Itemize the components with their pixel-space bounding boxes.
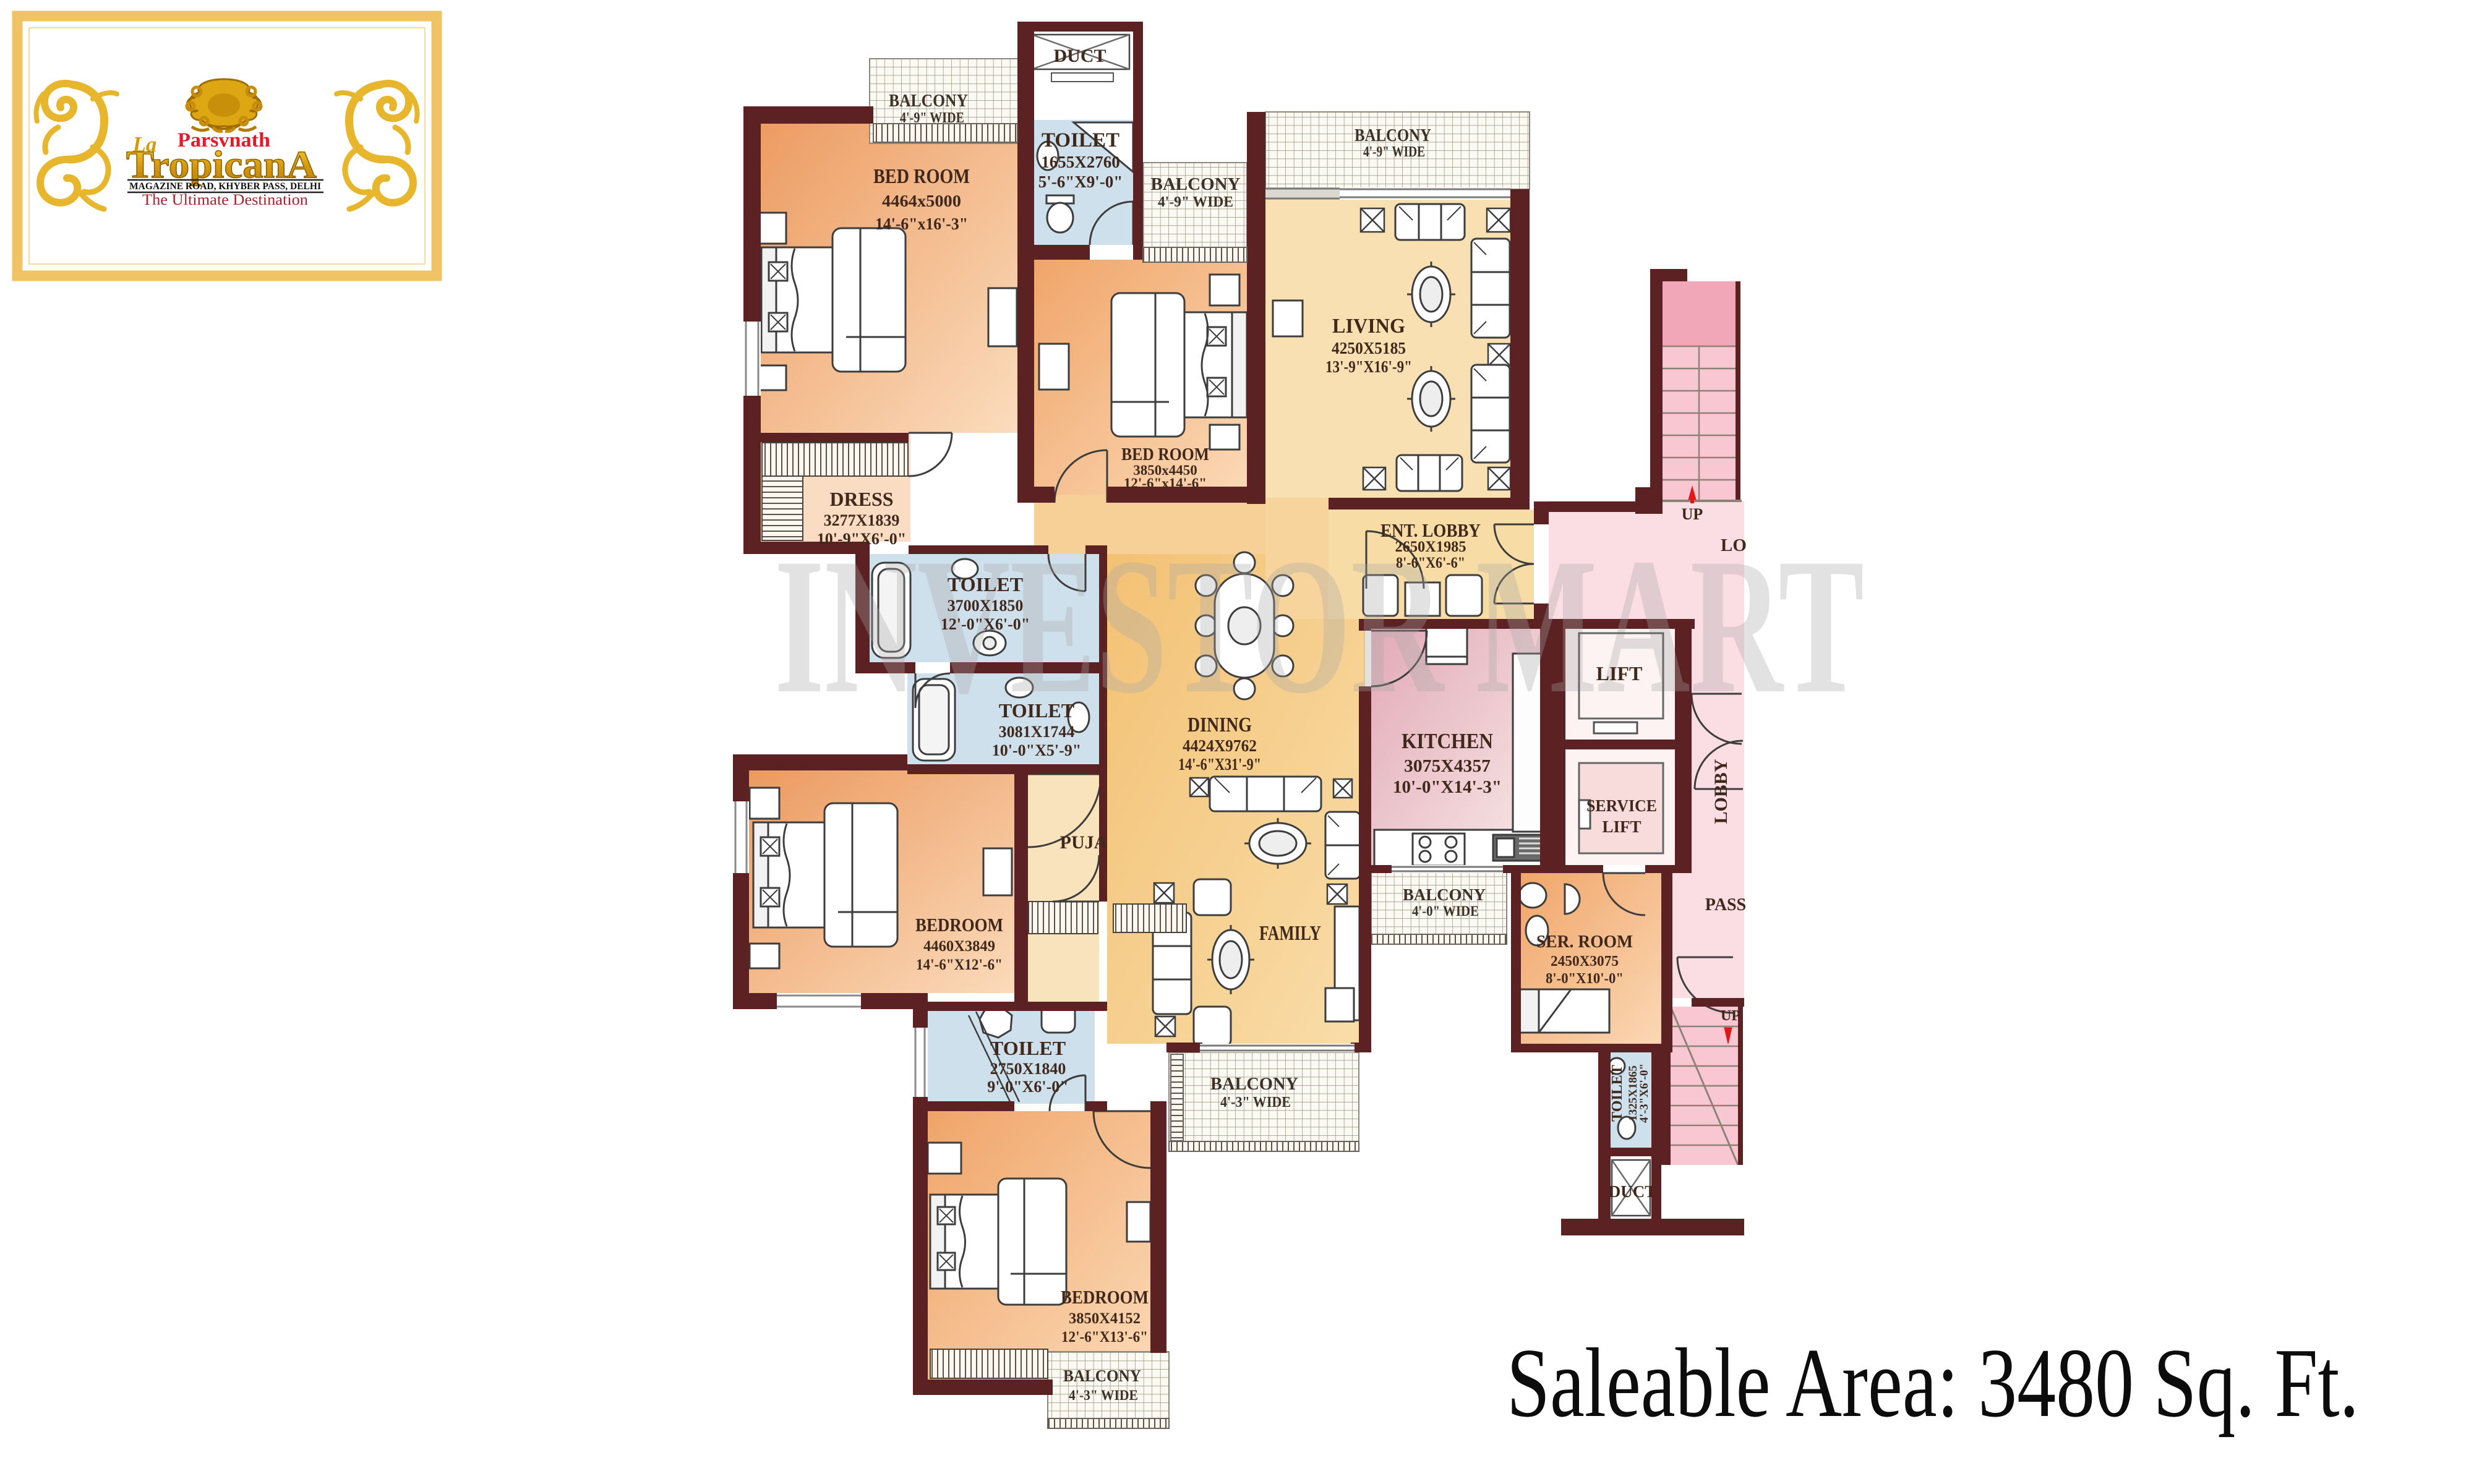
svg-text:14'-6"X12'-6": 14'-6"X12'-6" xyxy=(916,957,1003,973)
svg-text:DRESS: DRESS xyxy=(829,488,893,510)
svg-text:10'-0"X5'-9": 10'-0"X5'-9" xyxy=(992,741,1081,759)
svg-text:2650X1985: 2650X1985 xyxy=(1395,539,1466,555)
svg-text:9'-0"X6'-0": 9'-0"X6'-0" xyxy=(987,1078,1068,1096)
svg-text:BED ROOM: BED ROOM xyxy=(1121,445,1209,464)
svg-text:4'-9" WIDE: 4'-9" WIDE xyxy=(900,110,964,126)
svg-text:ENT. LOBBY: ENT. LOBBY xyxy=(1380,519,1481,541)
svg-text:4'-9" WIDE: 4'-9" WIDE xyxy=(1363,144,1425,160)
svg-text:2450X3075: 2450X3075 xyxy=(1551,953,1619,970)
svg-text:TOILET: TOILET xyxy=(1609,1065,1625,1122)
svg-text:TOILET: TOILET xyxy=(1042,129,1119,151)
svg-text:BALCONY: BALCONY xyxy=(1063,1367,1141,1385)
svg-text:4424X9762: 4424X9762 xyxy=(1183,736,1257,755)
svg-text:3277X1839: 3277X1839 xyxy=(824,511,900,529)
svg-text:BEDROOM: BEDROOM xyxy=(915,914,1003,936)
svg-text:FAMILY: FAMILY xyxy=(1259,922,1321,945)
svg-text:12'-0"X6'-0": 12'-0"X6'-0" xyxy=(941,615,1030,633)
svg-text:KITCHEN: KITCHEN xyxy=(1402,729,1493,753)
svg-text:UP: UP xyxy=(1682,505,1703,523)
svg-text:10'-0"X14'-3": 10'-0"X14'-3" xyxy=(1393,777,1502,797)
svg-text:MAGAZINE ROAD, KHYBER PASS, DE: MAGAZINE ROAD, KHYBER PASS, DELHI xyxy=(129,181,321,192)
svg-text:3081X1744: 3081X1744 xyxy=(999,723,1075,741)
svg-text:14'-6"X31'-9": 14'-6"X31'-9" xyxy=(1178,755,1261,774)
svg-text:SERVICE: SERVICE xyxy=(1586,796,1657,815)
svg-text:LO: LO xyxy=(1721,535,1747,555)
svg-text:BALCONY: BALCONY xyxy=(1403,885,1486,904)
svg-text:4464x5000: 4464x5000 xyxy=(882,192,961,210)
svg-text:4250X5185: 4250X5185 xyxy=(1332,339,1406,357)
svg-text:4'-9" WIDE: 4'-9" WIDE xyxy=(1158,194,1233,210)
svg-text:DUCT: DUCT xyxy=(1609,1182,1656,1201)
svg-text:UP: UP xyxy=(1721,1008,1740,1024)
svg-text:8'-6"X6'-6": 8'-6"X6'-6" xyxy=(1396,555,1465,571)
svg-text:BALCONY: BALCONY xyxy=(1151,174,1241,194)
svg-text:SER. ROOM: SER. ROOM xyxy=(1536,932,1633,952)
svg-text:1655X2760: 1655X2760 xyxy=(1041,153,1120,171)
svg-text:4460X3849: 4460X3849 xyxy=(923,938,995,955)
svg-text:4'-3" WIDE: 4'-3" WIDE xyxy=(1220,1094,1291,1111)
svg-text:4'-3" WIDE: 4'-3" WIDE xyxy=(1069,1388,1138,1403)
svg-text:12'-6"x14'-6": 12'-6"x14'-6" xyxy=(1124,475,1207,491)
svg-text:3700X1850: 3700X1850 xyxy=(948,597,1024,615)
svg-text:14'-6"x16'-3": 14'-6"x16'-3" xyxy=(875,215,968,233)
svg-text:4'-3"X6'-0": 4'-3"X6'-0" xyxy=(1638,1064,1651,1123)
svg-text:4'-0" WIDE: 4'-0" WIDE xyxy=(1412,903,1479,919)
svg-text:LIFT: LIFT xyxy=(1602,817,1641,836)
svg-text:BALCONY: BALCONY xyxy=(889,91,968,111)
svg-text:8'-0"X10'-0": 8'-0"X10'-0" xyxy=(1546,971,1624,987)
svg-text:TOILET: TOILET xyxy=(948,573,1023,595)
svg-text:BALCONY: BALCONY xyxy=(1355,126,1431,145)
svg-text:LIFT: LIFT xyxy=(1596,662,1643,684)
svg-text:LIVING: LIVING xyxy=(1332,315,1405,338)
svg-text:13'-9"X16'-9": 13'-9"X16'-9" xyxy=(1325,357,1412,376)
svg-text:DINING: DINING xyxy=(1188,714,1252,736)
svg-text:BEDROOM: BEDROOM xyxy=(1061,1286,1149,1308)
svg-text:12'-6"X13'-6": 12'-6"X13'-6" xyxy=(1061,1329,1148,1345)
svg-text:2750X1840: 2750X1840 xyxy=(990,1060,1066,1078)
svg-text:TOILET: TOILET xyxy=(999,699,1074,722)
svg-text:PASS: PASS xyxy=(1705,895,1746,915)
svg-text:BALCONY: BALCONY xyxy=(1210,1074,1298,1094)
svg-text:3850X4152: 3850X4152 xyxy=(1069,1310,1141,1327)
svg-text:Saleable Area: 3480 Sq. Ft.: Saleable Area: 3480 Sq. Ft. xyxy=(1507,1328,2359,1438)
svg-text:PUJA: PUJA xyxy=(1060,832,1108,853)
svg-text:The Ultimate Destination: The Ultimate Destination xyxy=(142,192,309,208)
svg-text:TOILET: TOILET xyxy=(990,1037,1066,1059)
svg-text:DUCT: DUCT xyxy=(1053,46,1106,66)
svg-text:5'-6"X9'-0": 5'-6"X9'-0" xyxy=(1038,173,1123,191)
svg-text:LOBBY: LOBBY xyxy=(1711,759,1731,824)
svg-text:3075X4357: 3075X4357 xyxy=(1404,756,1491,776)
svg-text:10'-9"X6'-0": 10'-9"X6'-0" xyxy=(817,530,906,548)
svg-text:BED ROOM: BED ROOM xyxy=(873,165,970,188)
svg-text:INVESTOR MART: INVESTOR MART xyxy=(774,518,1864,733)
